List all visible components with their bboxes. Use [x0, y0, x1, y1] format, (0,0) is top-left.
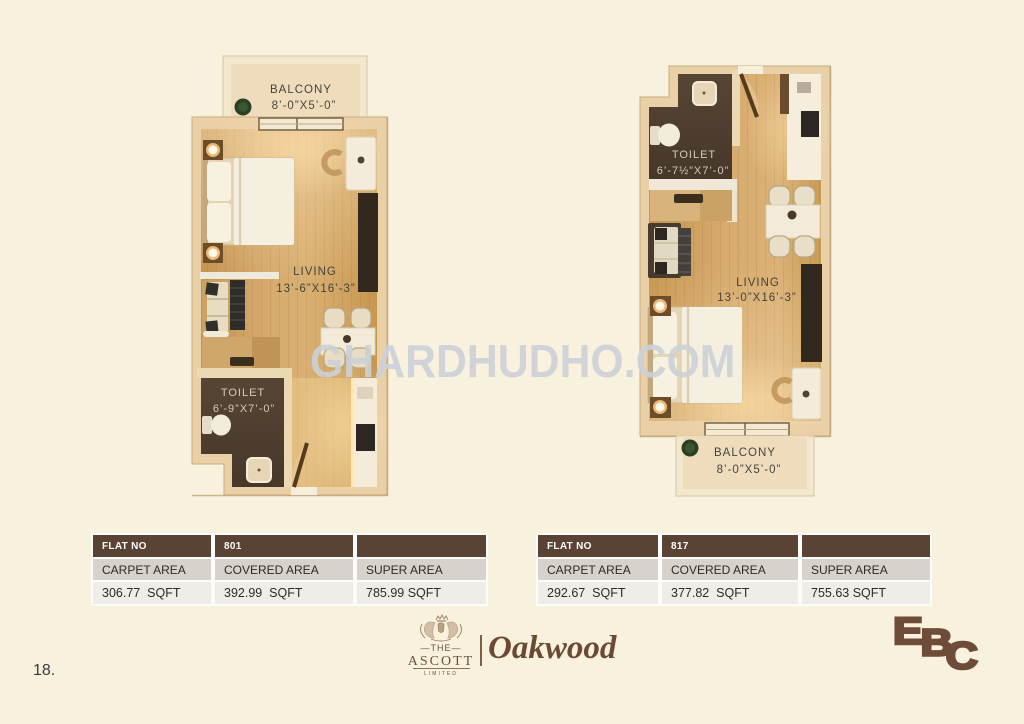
svg-text:C: C	[946, 634, 978, 677]
svg-text:E: E	[893, 609, 923, 652]
